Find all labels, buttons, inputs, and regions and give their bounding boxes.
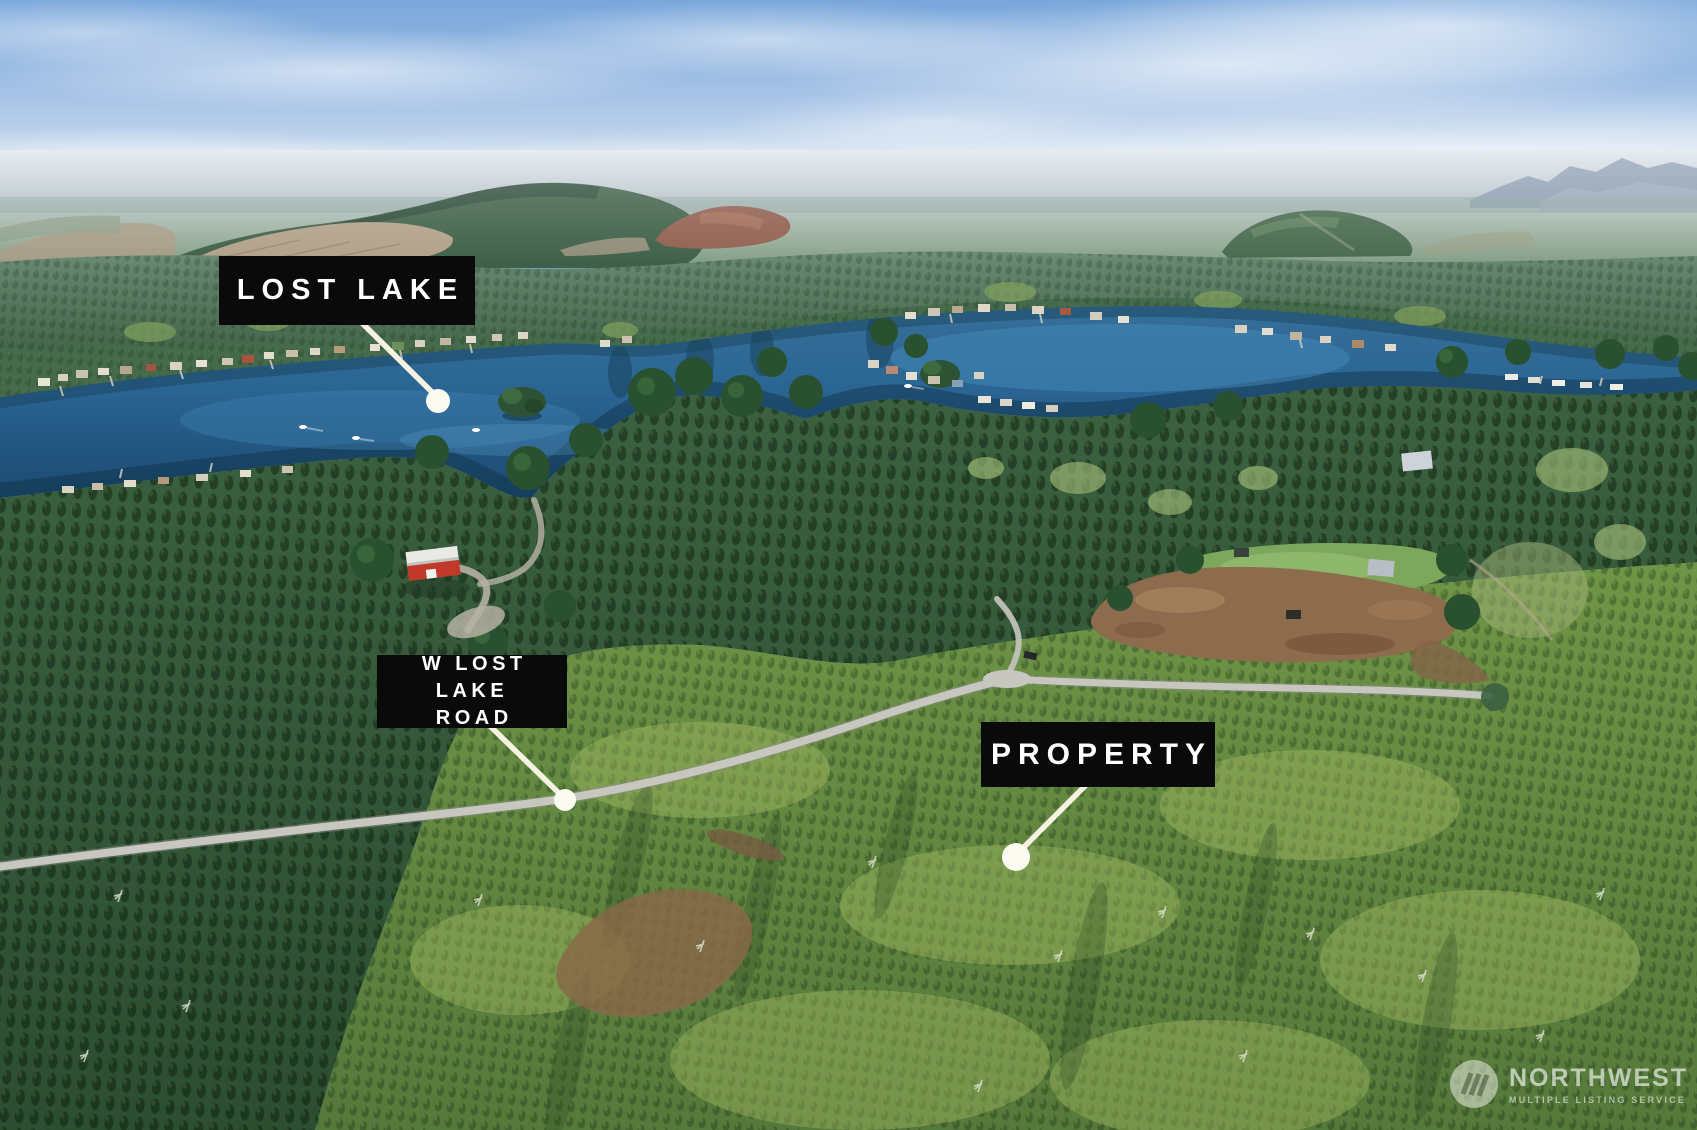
excavator [1286, 610, 1301, 619]
aerial-listing-photo: LOST LAKE W LOST LAKE ROAD PROPERTY NORT… [0, 0, 1697, 1130]
watermark-brand: NORTHWEST [1509, 1064, 1688, 1093]
property-label-text: PROPERTY [984, 738, 1212, 772]
road-label-line2: ROAD [431, 705, 512, 732]
nwmls-logo-icon [1448, 1058, 1500, 1110]
terrain-artwork [0, 0, 1697, 1130]
house-gray-roof [1367, 559, 1394, 577]
shed [1234, 548, 1249, 557]
road-marker-dot [554, 789, 576, 811]
property-marker-dot [1002, 843, 1030, 871]
property-label: PROPERTY [981, 722, 1215, 787]
house-gray-roof [1401, 450, 1433, 471]
lake-island [498, 387, 546, 417]
lost-lake-label: LOST LAKE [219, 256, 475, 325]
road-label: W LOST LAKE ROAD [377, 655, 567, 728]
road-label-line1: W LOST LAKE [377, 651, 567, 705]
mls-watermark: NORTHWEST MULTIPLE LISTING SERVICE [1448, 1058, 1688, 1110]
lost-lake-label-text: LOST LAKE [230, 274, 464, 307]
watermark-tagline: MULTIPLE LISTING SERVICE [1509, 1095, 1688, 1105]
lost-lake-marker-dot [426, 389, 450, 413]
